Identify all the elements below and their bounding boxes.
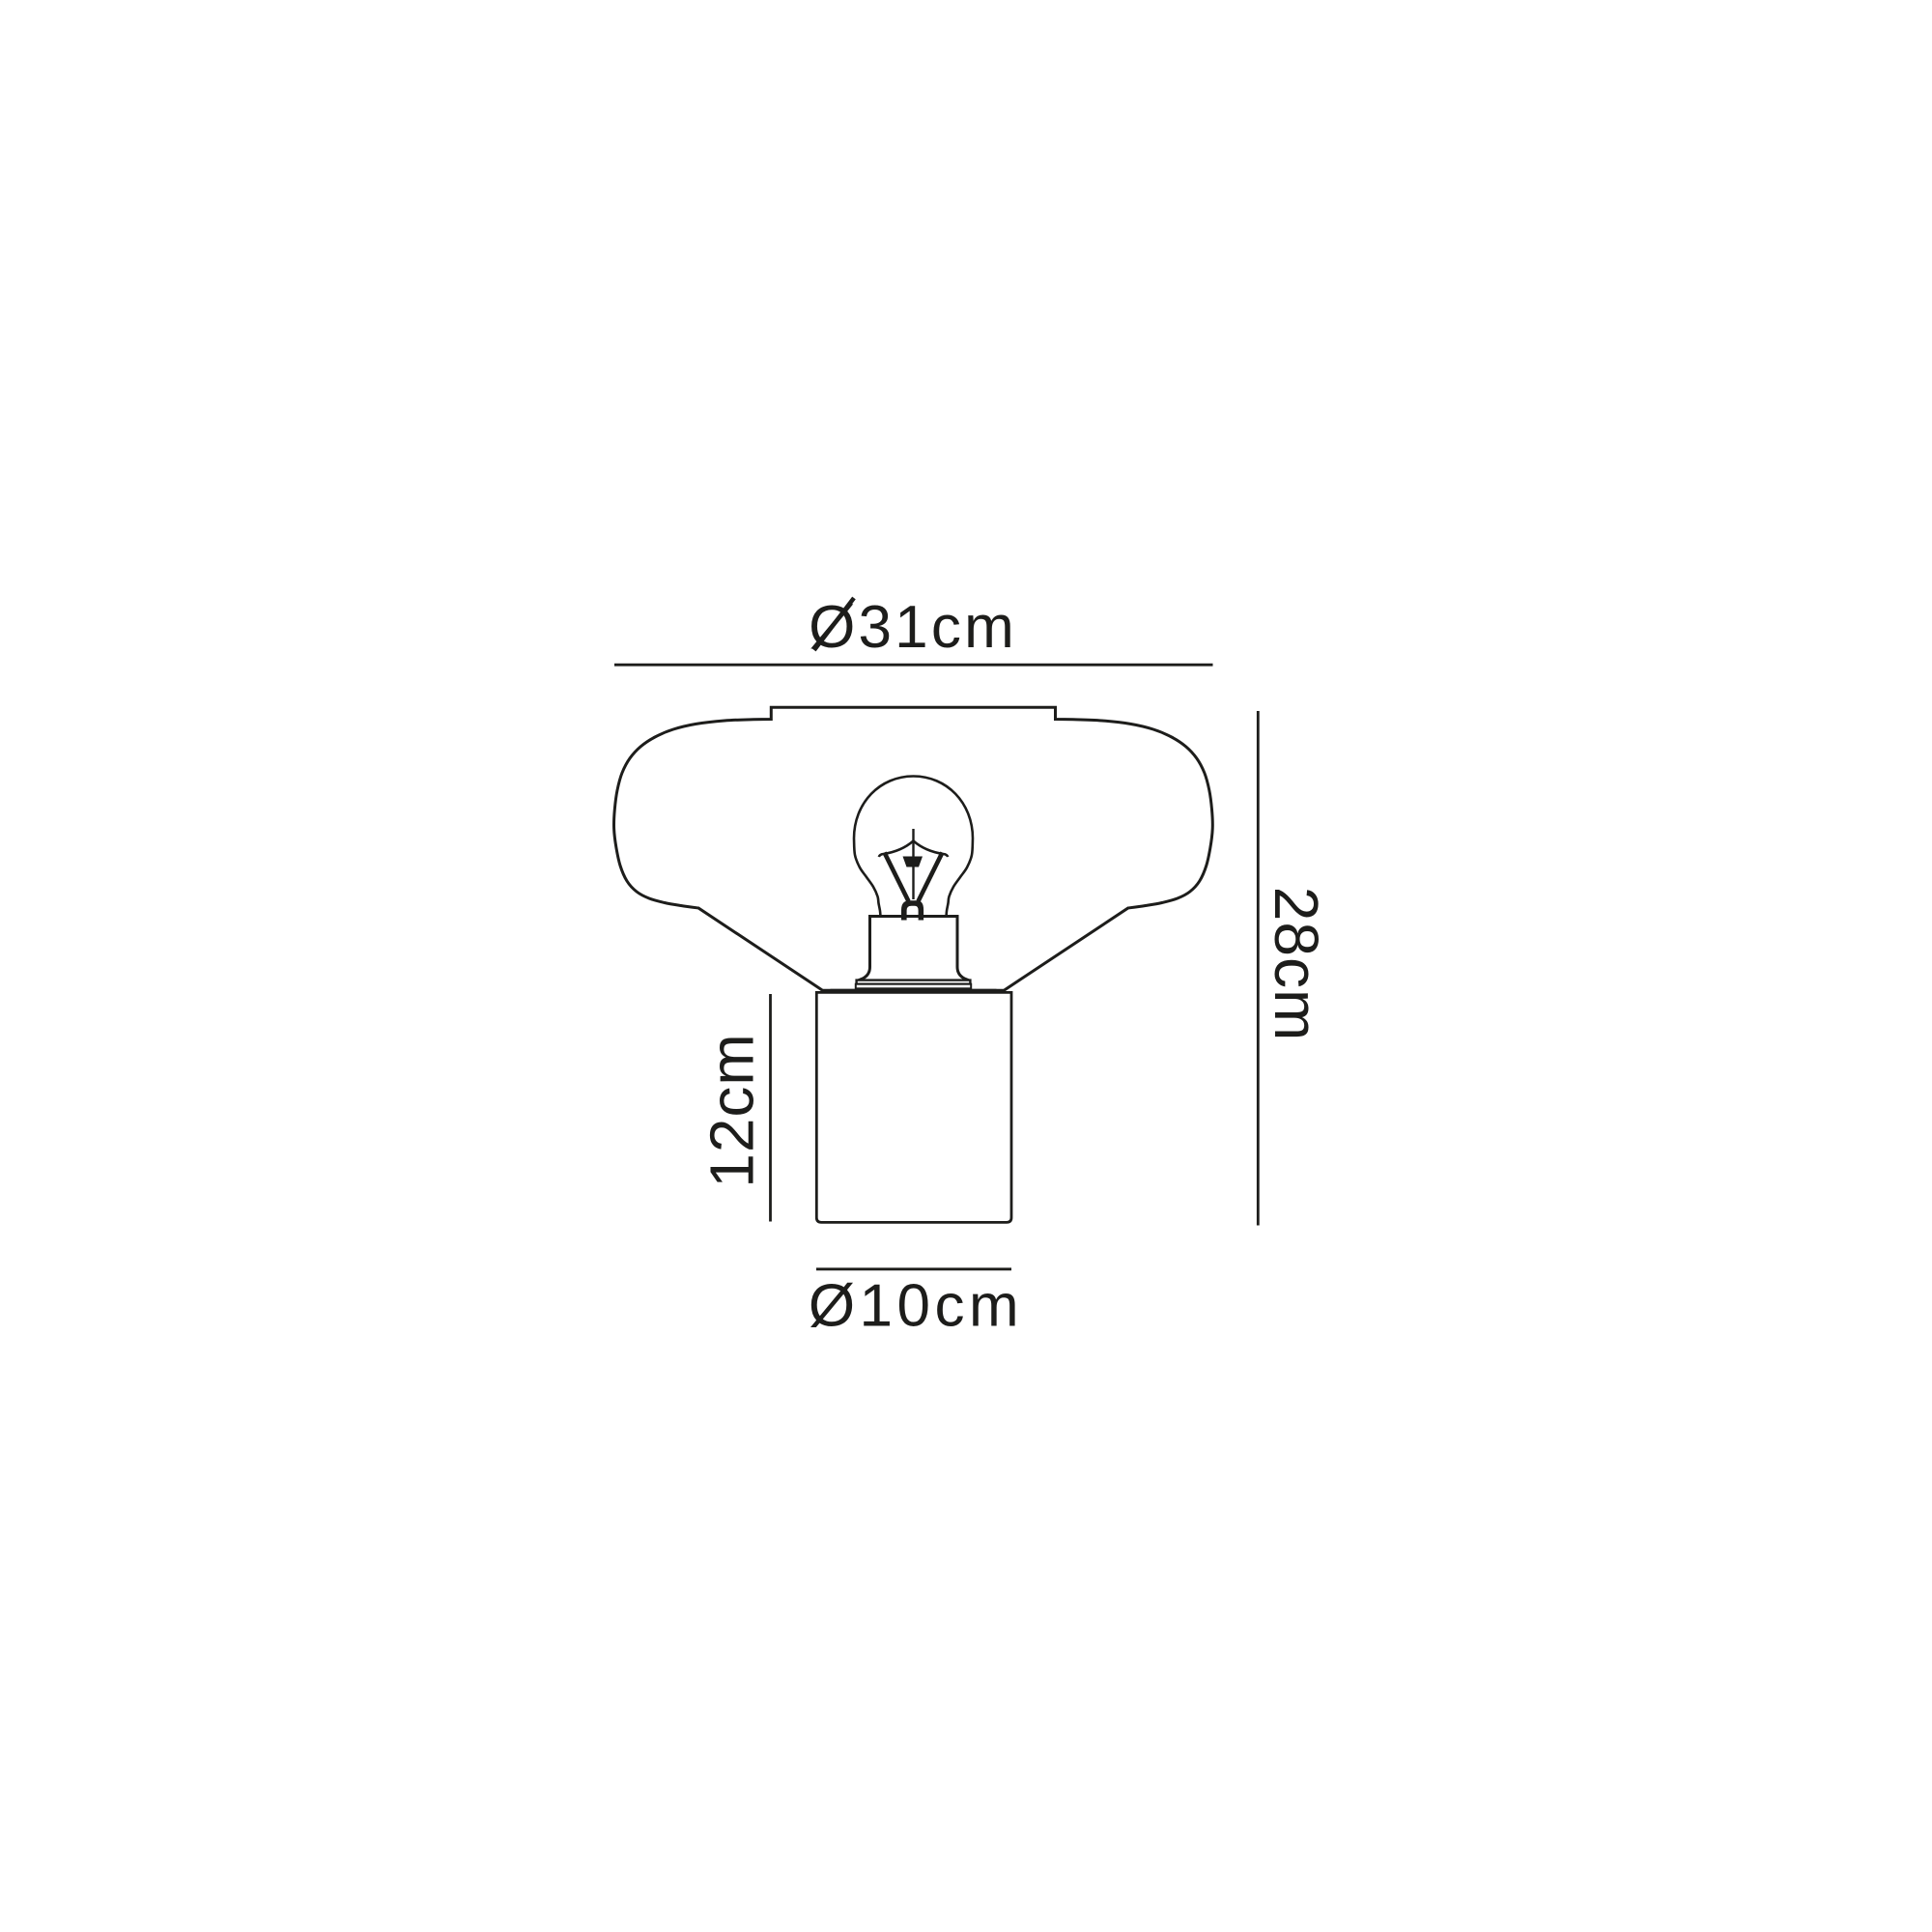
- svg-text:Ø31cm: Ø31cm: [809, 594, 1017, 661]
- svg-text:12cm: 12cm: [697, 1033, 767, 1188]
- svg-text:28cm: 28cm: [1262, 887, 1331, 1042]
- svg-text:Ø10cm: Ø10cm: [809, 1273, 1023, 1340]
